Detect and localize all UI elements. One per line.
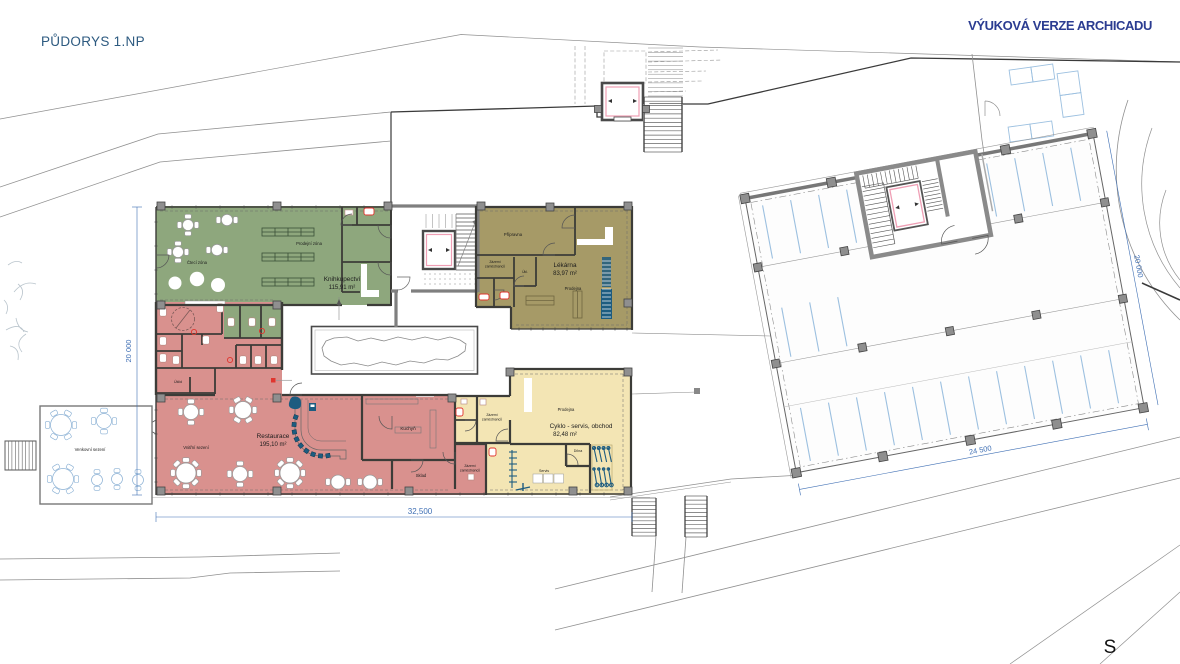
svg-text:PŮDORYS 1.NP: PŮDORYS 1.NP — [41, 34, 145, 49]
svg-text:Knihkupectví: Knihkupectví — [324, 276, 361, 283]
svg-text:20 000: 20 000 — [124, 340, 133, 363]
svg-text:Vnitřní sezení: Vnitřní sezení — [183, 445, 209, 450]
svg-text:zaměstnanců: zaměstnanců — [485, 265, 505, 269]
svg-text:zaměstnanců: zaměstnanců — [460, 469, 480, 473]
svg-text:S: S — [1104, 637, 1117, 658]
svg-text:32,500: 32,500 — [408, 507, 433, 516]
svg-text:Servis: Servis — [539, 469, 549, 473]
svg-text:Venkovní sezení: Venkovní sezení — [75, 447, 107, 452]
svg-text:VÝUKOVÁ VERZE ARCHICADU: VÝUKOVÁ VERZE ARCHICADU — [968, 18, 1152, 33]
svg-text:Cyklo - servis, obchod: Cyklo - servis, obchod — [550, 423, 613, 430]
svg-text:Prodejna: Prodejna — [558, 407, 575, 412]
svg-text:83,97 m²: 83,97 m² — [553, 271, 577, 277]
svg-text:Čtecí zóna: Čtecí zóna — [187, 260, 208, 265]
svg-text:Úkl.: Úkl. — [522, 269, 528, 274]
svg-text:Kuchyň: Kuchyň — [400, 426, 416, 431]
svg-text:Zázemí: Zázemí — [464, 464, 475, 468]
svg-text:82,48 m²: 82,48 m² — [553, 432, 577, 438]
svg-text:zaměstnanců: zaměstnanců — [482, 418, 502, 422]
svg-text:Dílna: Dílna — [574, 449, 582, 453]
svg-text:Zázemí: Zázemí — [489, 260, 500, 264]
svg-text:Úklid: Úklid — [174, 379, 182, 384]
svg-text:Zázemí: Zázemí — [486, 413, 497, 417]
svg-text:195,10 m²: 195,10 m² — [259, 442, 286, 448]
svg-text:115,91 m²: 115,91 m² — [329, 285, 356, 291]
svg-text:Restaurace: Restaurace — [257, 433, 290, 440]
svg-text:Přípravna: Přípravna — [504, 232, 523, 237]
svg-text:Prodejna: Prodejna — [565, 286, 582, 291]
svg-text:Prodejní zóna: Prodejní zóna — [296, 241, 323, 246]
svg-text:Lékárna: Lékárna — [553, 262, 577, 269]
svg-text:Sklad: Sklad — [416, 473, 427, 478]
